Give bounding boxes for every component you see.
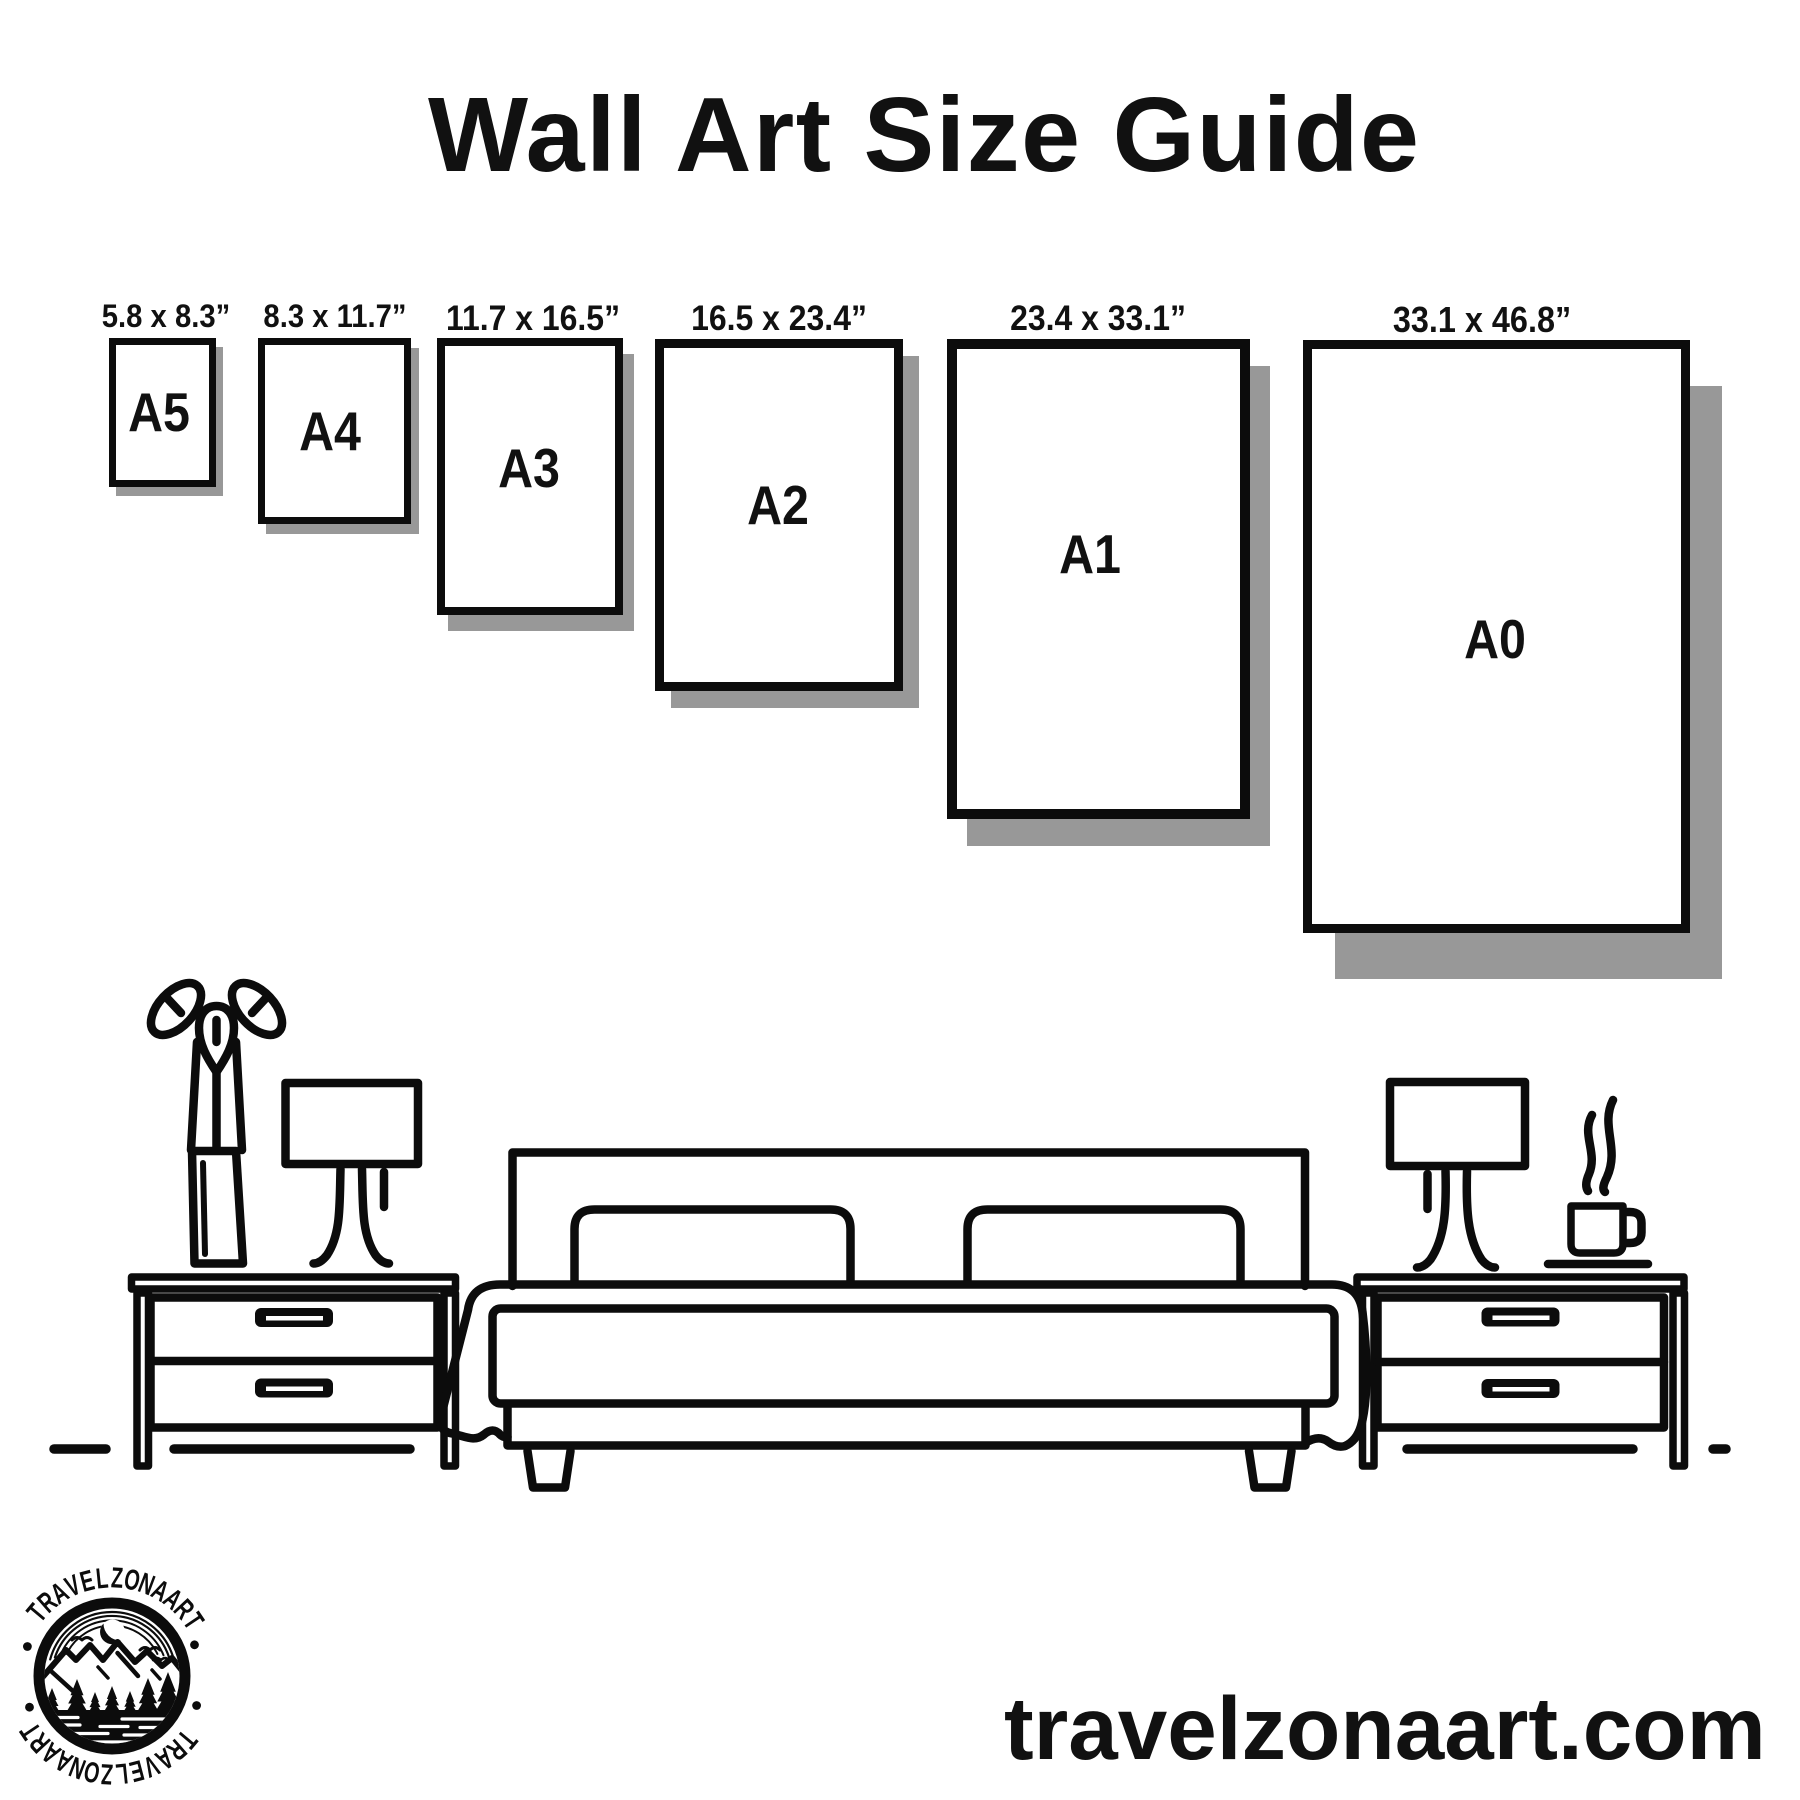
svg-text:L: L [95, 1563, 110, 1596]
svg-text:L: L [114, 1756, 129, 1789]
